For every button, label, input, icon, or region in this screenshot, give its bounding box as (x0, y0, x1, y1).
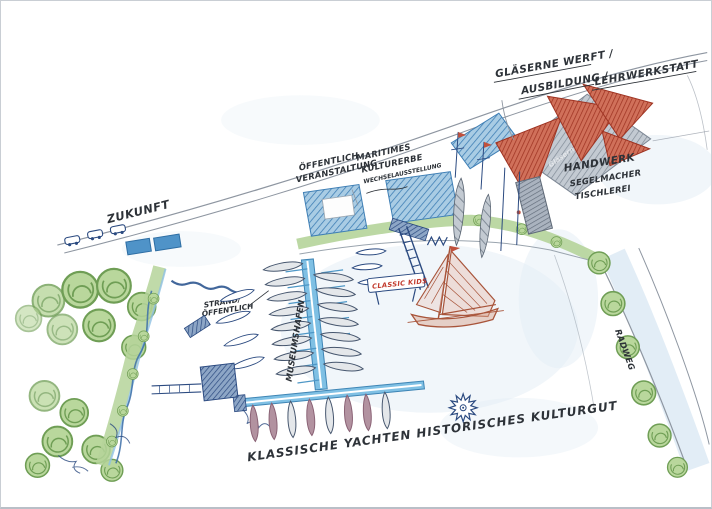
tree-icon (632, 381, 656, 405)
boat-icon (223, 331, 259, 349)
boat-icon (268, 403, 278, 440)
tree-icon (26, 453, 50, 477)
bush-icon (117, 405, 128, 416)
tree-icon (30, 381, 60, 411)
boat-icon (249, 405, 259, 442)
tree-icon (588, 252, 610, 274)
boat-icon (287, 401, 297, 438)
parked-cars (64, 224, 126, 247)
boat-icon (306, 399, 316, 436)
tree-icon (648, 424, 671, 447)
tree-icon (97, 269, 131, 303)
boat-icon (324, 397, 334, 434)
car-icon (64, 235, 80, 247)
tree-icon (668, 457, 688, 477)
site-plan-sketch: ZUKUNFT STRAND/ ÖFFENTLICH (1, 1, 711, 506)
tree-icon (601, 292, 625, 316)
boat-icon (263, 260, 303, 274)
werft-line3: LEHRWERKSTATT (594, 58, 701, 88)
tree-icon (62, 272, 98, 308)
bush-icon (551, 237, 562, 248)
bush-icon (138, 331, 149, 342)
tree-icon (42, 427, 72, 457)
sketch-frame: ZUKUNFT STRAND/ ÖFFENTLICH (0, 0, 712, 509)
platform-pier (152, 315, 238, 400)
tree-icon (47, 315, 77, 345)
bush-icon (148, 293, 159, 304)
boat-icon (343, 395, 353, 432)
car-icon (110, 224, 126, 236)
bush-icon (127, 369, 138, 380)
tree-icon (16, 306, 42, 332)
zukunft-label: ZUKUNFT (104, 197, 171, 227)
radweg-path: RADWEG (588, 248, 709, 477)
car-icon (87, 229, 103, 241)
tree-icon (60, 399, 88, 427)
tree-icon (83, 310, 115, 342)
